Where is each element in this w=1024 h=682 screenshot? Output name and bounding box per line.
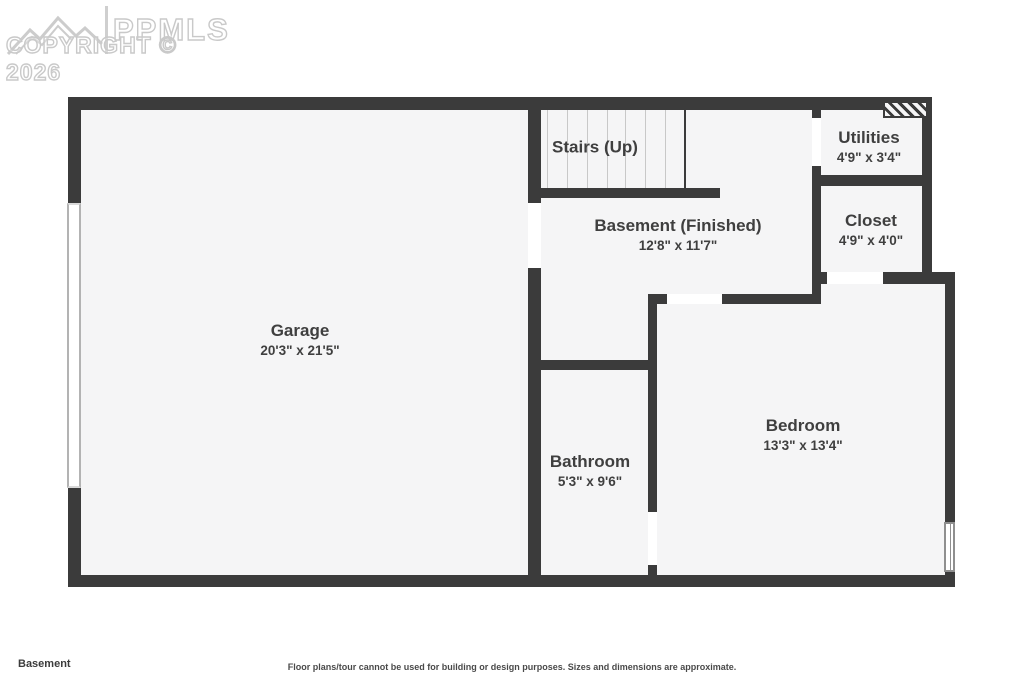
room-dimensions: 12'8" x 11'7" [594,238,761,255]
floor-plan: Garage 20'3" x 21'5" Stairs (Up) Basemen… [0,0,1024,682]
door-bathroom [648,512,657,565]
wall-left-lower [68,488,81,587]
door-garage-basement [528,203,541,268]
window-bedroom-right [944,522,955,572]
utility-equipment-hatch [883,101,928,118]
room-dimensions: 13'3" x 13'4" [763,438,842,455]
room-name: Closet [839,210,903,231]
room-label-bathroom: Bathroom 5'3" x 9'6" [550,451,630,491]
room-label-basement: Basement (Finished) 12'8" x 11'7" [594,215,761,255]
room-name: Bathroom [550,451,630,472]
room-dimensions: 20'3" x 21'5" [260,343,339,360]
room-name: Utilities [837,127,901,148]
wall-left-upper [68,97,81,203]
wall-right-upper [922,97,932,275]
room-label-bedroom: Bedroom 13'3" x 13'4" [763,415,842,455]
window-garage-left [67,203,81,488]
room-name: Bedroom [763,415,842,436]
stair-edge-line [684,110,686,188]
room-label-garage: Garage 20'3" x 21'5" [260,320,339,360]
wall-bathroom-bedroom-lower [648,565,657,577]
door-bedroom [667,294,722,304]
room-name: Stairs (Up) [552,136,638,157]
wall-utilities-bottom [812,175,932,186]
room-label-utilities: Utilities 4'9" x 3'4" [837,127,901,167]
wall-bedroom-right-upper [945,272,955,522]
window-mullion [950,524,951,570]
room-dimensions: 4'9" x 4'0" [839,233,903,250]
wall-bedroom-right-lower [945,572,955,587]
room-name: Basement (Finished) [594,215,761,236]
room-dimensions: 5'3" x 9'6" [550,474,630,491]
wall-bathroom-top [528,360,657,370]
wall-closet-bottom-left [812,272,827,284]
room-label-closet: Closet 4'9" x 4'0" [839,210,903,250]
stair-tread [547,110,548,188]
door-utilities [812,118,821,166]
wall-stairs-bottom [528,188,720,198]
stair-tread [665,110,666,188]
disclaimer-text: Floor plans/tour cannot be used for buil… [0,662,1024,672]
wall-bottom [68,575,955,587]
stair-tread [645,110,646,188]
wall-bathroom-bedroom-upper [648,294,657,512]
wall-bedroom-top-right [722,294,818,304]
room-label-stairs: Stairs (Up) [552,136,638,157]
wall-closet-bottom-right [883,272,955,284]
wall-utilities-left-stub [812,110,821,118]
door-closet [827,272,883,284]
wall-top [68,97,932,110]
floor-area-main [68,97,932,587]
wall-garage-divider-lower [528,268,541,575]
room-name: Garage [260,320,339,341]
room-dimensions: 4'9" x 3'4" [837,150,901,167]
